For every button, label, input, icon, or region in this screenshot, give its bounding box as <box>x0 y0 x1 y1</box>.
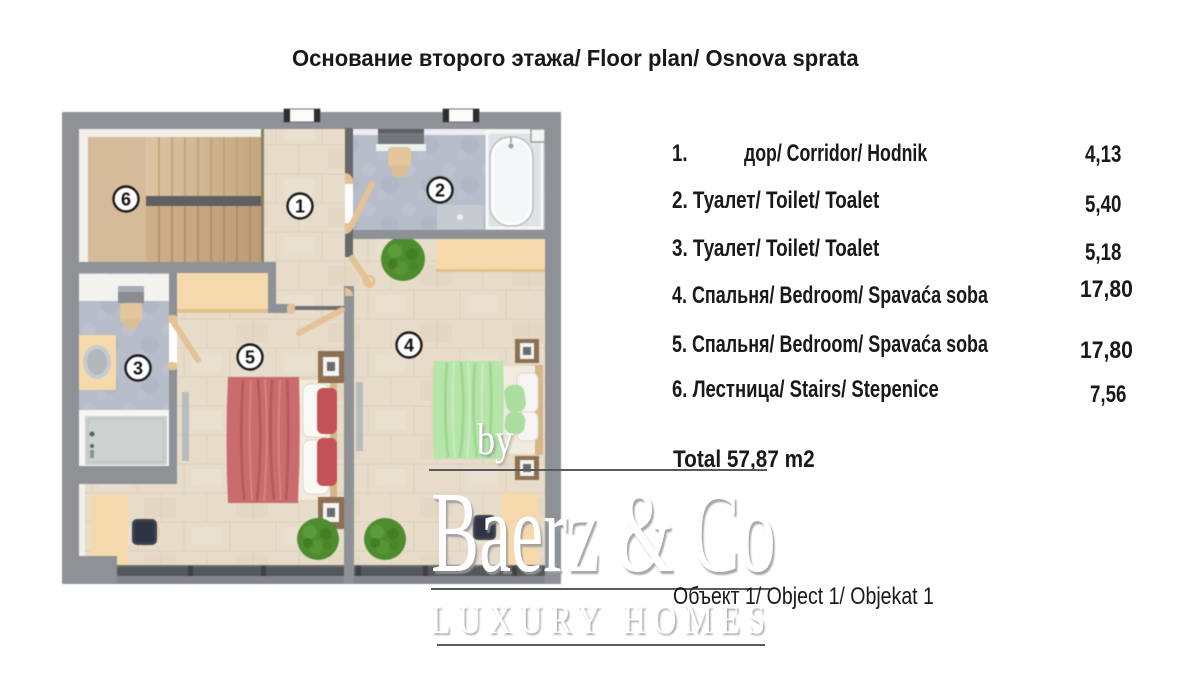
svg-text:6: 6 <box>121 190 131 210</box>
svg-text:1: 1 <box>295 197 305 217</box>
svg-text:5: 5 <box>245 348 255 368</box>
svg-text:2: 2 <box>435 181 445 201</box>
svg-text:3: 3 <box>133 359 143 379</box>
svg-text:4: 4 <box>404 336 414 356</box>
